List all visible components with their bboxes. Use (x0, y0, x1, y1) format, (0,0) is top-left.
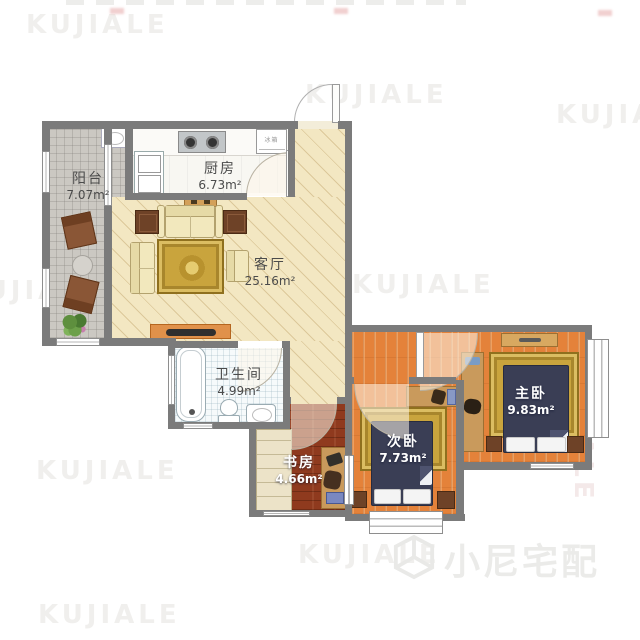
pillow (506, 437, 535, 452)
master-bedroom-door (416, 332, 424, 382)
kitchen-sink (134, 151, 164, 195)
entrance-door (332, 84, 340, 123)
bathtub (176, 346, 206, 422)
window (56, 338, 100, 346)
desk-item (447, 389, 456, 405)
window (530, 463, 574, 469)
desk-pad (326, 492, 344, 504)
room-area: 6.73m² (190, 178, 250, 192)
wall-segment (456, 380, 464, 521)
desk-chair (430, 389, 446, 406)
fridge-label: 冰箱 (257, 135, 286, 144)
room-label-kitchen: 厨房 6.73m² (190, 161, 250, 192)
entrance-door-arc (294, 84, 332, 122)
red-watermark-mark (110, 8, 124, 14)
stove (178, 131, 226, 153)
room-name: 卫生间 (206, 367, 272, 384)
room-label-living: 客厅 25.16m² (238, 257, 302, 288)
side-table (135, 210, 159, 234)
entry-hall-floor (295, 129, 345, 197)
watermark-text: KUJIALE (556, 100, 640, 130)
bathroom-sink (246, 404, 276, 424)
dresser-handle (519, 338, 541, 342)
bay-window (369, 511, 443, 534)
wall-segment (125, 193, 247, 200)
room-area: 25.16m² (238, 274, 302, 288)
toilet (220, 399, 238, 416)
window (344, 455, 354, 505)
fridge: 冰箱 (256, 129, 287, 154)
wall-segment (345, 325, 592, 332)
red-watermark-mark (334, 8, 348, 14)
sofa (165, 205, 215, 238)
watermark-text: KUJIALE (352, 270, 495, 300)
bag (463, 398, 482, 416)
watermark-dash-row (66, 0, 466, 5)
nightstand (567, 436, 584, 453)
wall-segment (283, 397, 291, 404)
balcony-chair (61, 211, 97, 250)
room-area: 4.99m² (206, 384, 272, 398)
pillow (403, 489, 431, 504)
floor-plan: KUJIALE KUJIALE KUJIALE KUJIALE KUJIALE … (0, 0, 640, 640)
burner (206, 136, 219, 149)
balcony-table (72, 255, 93, 276)
room-label-second-bedroom: 次卧 7.73m² (372, 434, 434, 465)
wall-segment (168, 341, 238, 348)
loveseat (130, 242, 155, 294)
wall-segment (283, 341, 290, 429)
room-label-bathroom: 卫生间 4.99m² (206, 367, 272, 398)
corridor-floor (290, 341, 345, 404)
wall-segment (345, 121, 352, 402)
brand-logo-text: 小尼宅配 (444, 533, 600, 585)
room-label-balcony: 阳台 7.07m² (56, 171, 120, 202)
burner (184, 136, 197, 149)
red-watermark-mark (598, 10, 612, 16)
cube-logo-icon (392, 533, 436, 585)
living-room-rug (157, 239, 224, 294)
watermark-text: KUJIALE (36, 456, 179, 486)
wall-segment (125, 121, 133, 200)
pillow (374, 489, 401, 504)
window (263, 511, 310, 516)
room-area: 9.83m² (500, 403, 562, 417)
window (42, 151, 50, 193)
bay-window (587, 339, 609, 438)
room-name: 书房 (268, 455, 330, 472)
nightstand (486, 436, 502, 452)
watermark-text: KUJIALE (26, 10, 169, 40)
room-area: 4.66m² (268, 472, 330, 486)
window (183, 423, 213, 429)
room-name: 客厅 (238, 257, 302, 274)
dresser (501, 333, 558, 347)
room-label-master-bedroom: 主卧 9.83m² (500, 386, 562, 417)
room-area: 7.07m² (56, 188, 120, 202)
wall-segment (345, 377, 354, 384)
side-table (223, 210, 247, 234)
room-name: 主卧 (500, 386, 562, 403)
window (168, 355, 175, 405)
room-name: 次卧 (372, 434, 434, 451)
wall-segment (288, 121, 295, 197)
blanket-fold (420, 466, 432, 485)
room-name: 厨房 (190, 161, 250, 178)
rug-medallion (179, 255, 205, 281)
watermark-text: KUJIALE (38, 600, 181, 630)
pillow (537, 437, 566, 452)
tv (166, 329, 216, 336)
brand-logo: 小尼宅配 (392, 533, 600, 585)
tv-stand (150, 324, 231, 339)
sofa-armrest (215, 205, 223, 238)
wall-segment (42, 121, 298, 129)
nightstand (437, 491, 455, 509)
room-name: 阳台 (56, 171, 120, 188)
wall-segment (249, 422, 256, 517)
window (42, 268, 50, 308)
wall-segment (409, 377, 456, 384)
room-area: 7.73m² (372, 451, 434, 465)
room-label-study: 书房 4.66m² (268, 455, 330, 486)
potted-plant (62, 313, 88, 339)
